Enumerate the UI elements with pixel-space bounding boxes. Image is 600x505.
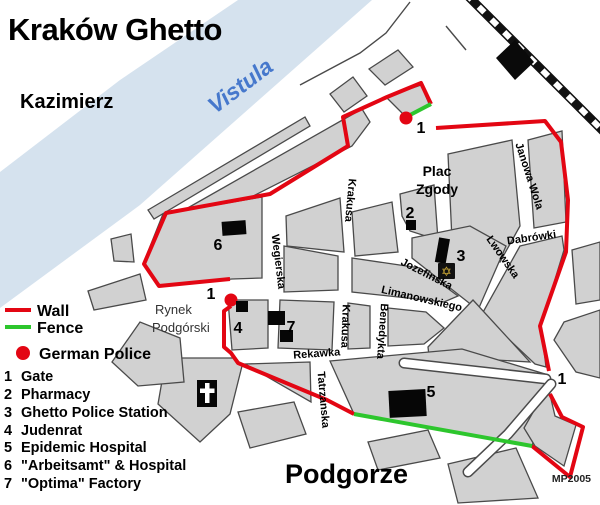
street-label-wegierska: Wegierska: [269, 234, 288, 291]
legend-item-label: Gate: [21, 369, 53, 385]
plac-zgody-label: Plac: [423, 163, 452, 179]
church-icon: [197, 380, 217, 407]
legend-item-label: "Optima" Factory: [21, 476, 141, 492]
german-police-dot: [225, 294, 238, 307]
street-label-tatrzanska: Tatrzanska: [315, 371, 332, 429]
legend-item: 2 Pharmacy: [4, 387, 90, 403]
judenrat-marker: 4: [234, 320, 243, 337]
legend-item: 1 Gate: [4, 369, 53, 385]
legend-police-label: German Police: [39, 346, 151, 363]
gate-marker: 1: [207, 286, 216, 303]
legend-item-label: Judenrat: [21, 423, 82, 439]
legend-item-label: Epidemic Hospital: [21, 440, 147, 456]
legend-item: 4 Judenrat: [4, 423, 82, 439]
map-credit: MP2005: [552, 473, 591, 485]
street-label-krakusa: Krakusa: [338, 304, 352, 349]
legend-item-num: 4: [4, 423, 12, 439]
city-block: [238, 402, 306, 448]
city-block: [369, 50, 413, 85]
legend-item-num: 2: [4, 387, 12, 403]
judenrat-building: [236, 301, 248, 312]
railway-station-icon: [496, 40, 534, 80]
legend-item-num: 7: [4, 476, 12, 492]
pharmacy-marker: 2: [406, 205, 415, 222]
legend-item: 5 Epidemic Hospital: [4, 440, 147, 456]
street-edge: [446, 26, 466, 50]
legend-wall-label: Wall: [37, 303, 69, 320]
police-station-marker: 3: [457, 248, 466, 265]
city-block: [352, 202, 398, 256]
city-block: [286, 198, 344, 252]
legend-item-label: "Arbeitsamt" & Hospital: [21, 458, 186, 474]
epidemic-hospital-building: [388, 389, 426, 418]
podgorze-label: Podgorze: [285, 459, 408, 489]
legend-police-dot: [16, 346, 30, 360]
legend-item: 7 "Optima" Factory: [4, 476, 141, 492]
city-block: [448, 448, 538, 503]
kazimierz-label: Kazimierz: [20, 91, 113, 113]
city-block: [554, 310, 600, 378]
legend-item-num: 1: [4, 369, 12, 385]
legend-item-label: Pharmacy: [21, 387, 90, 403]
city-block: [88, 274, 146, 310]
street-label-benedykta: Benedykta: [374, 303, 390, 360]
legend-item-num: 6: [4, 458, 12, 474]
map-canvas: ✡ Kraków Ghetto Kazimierz Vistula Plac Z…: [0, 0, 600, 505]
optima-marker: 7: [287, 319, 296, 336]
legend-item-label: Ghetto Police Station: [21, 405, 168, 421]
legend-item-num: 5: [4, 440, 12, 456]
city-block: [284, 246, 338, 292]
german-police-dot: [400, 112, 413, 125]
legend-item: 6 "Arbeitsamt" & Hospital: [4, 458, 186, 474]
krakow-ghetto-map: ✡ Kraków Ghetto Kazimierz Vistula Plac Z…: [0, 0, 600, 505]
rynek-podgorski-label: Rynek: [155, 302, 192, 317]
street-label-krakusa: Krakusa: [342, 178, 358, 223]
arbeitsamt-building: [222, 220, 247, 236]
legend-fence-label: Fence: [37, 320, 83, 337]
city-block: [572, 242, 600, 304]
gate-marker: 1: [558, 371, 567, 388]
legend-item: 3 Ghetto Police Station: [4, 405, 168, 421]
city-block: [111, 234, 134, 262]
rynek-podgorski-label: Podgórski: [152, 320, 210, 335]
street-label-rekawka: Rekawka: [293, 346, 342, 361]
arbeitsamt-marker: 6: [214, 237, 223, 254]
map-title: Kraków Ghetto: [8, 12, 222, 47]
plac-zgody-label: Zgody: [416, 181, 458, 197]
legend-item-num: 3: [4, 405, 12, 421]
optima-building: [268, 311, 285, 325]
epidemic-hospital-marker: 5: [427, 384, 436, 401]
railway-line: [466, 0, 600, 132]
gate-marker: 1: [417, 120, 426, 137]
